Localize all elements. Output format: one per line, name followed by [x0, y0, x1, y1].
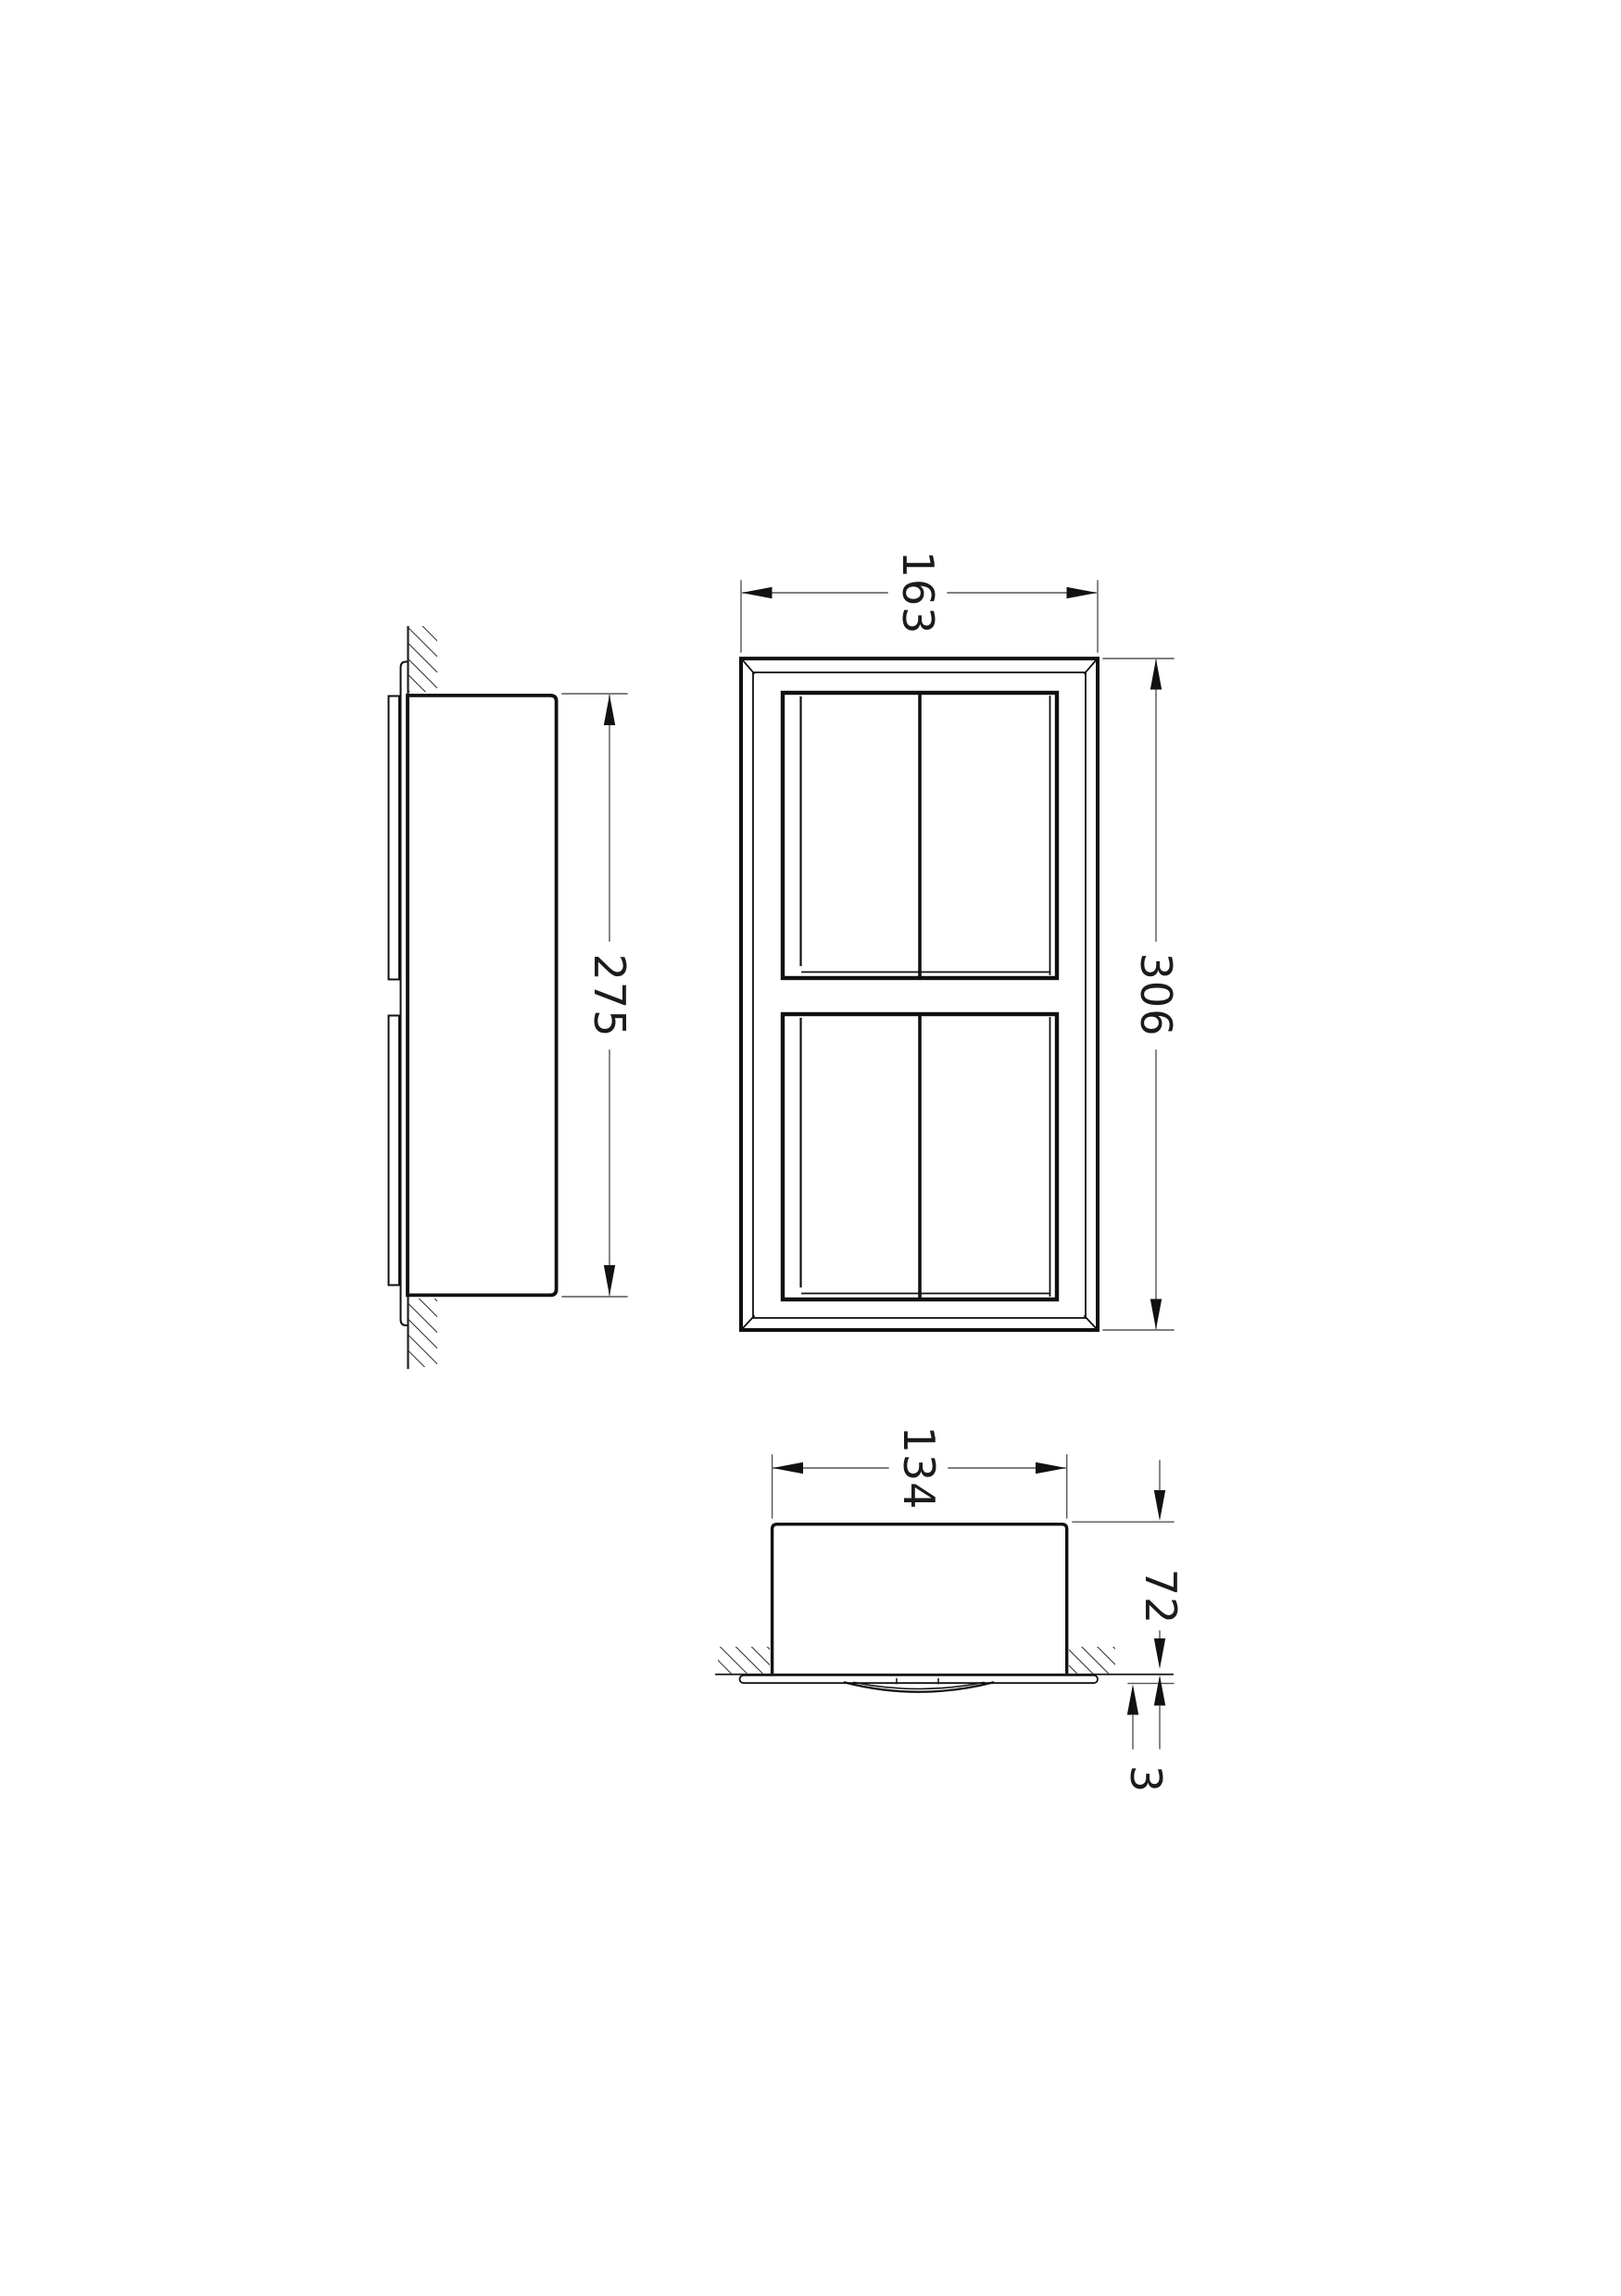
dim-plan-depth-label: 72	[1136, 1569, 1186, 1625]
dim-front-height-label: 306	[1131, 953, 1181, 1037]
front-lower-compartment	[783, 1014, 1057, 1299]
side-lower-flap-profile	[389, 1016, 400, 1286]
dim-plan-width-label: 134	[894, 1426, 944, 1511]
dim-front-width-label: 163	[893, 551, 943, 635]
side-wall-hatch-bottom	[408, 1299, 437, 1367]
plan-wall-hatch-left	[718, 1647, 770, 1674]
plan-wall-hatch-right	[1069, 1647, 1115, 1674]
side-upper-flap-profile	[389, 696, 400, 980]
side-wall-hatch-top	[408, 626, 437, 692]
front-upper-compartment	[783, 693, 1057, 978]
plan-frame-plate	[740, 1675, 1099, 1683]
dim-side-height-label: 275	[584, 954, 635, 1038]
plan-recessed-box	[773, 1524, 1067, 1675]
technical-drawing-page: 275	[0, 0, 1621, 2296]
side-recessed-box	[408, 696, 557, 1296]
dim-plan-protrusion-label: 3	[1121, 1765, 1171, 1793]
dimension-drawing-canvas: 275	[0, 0, 1621, 2296]
